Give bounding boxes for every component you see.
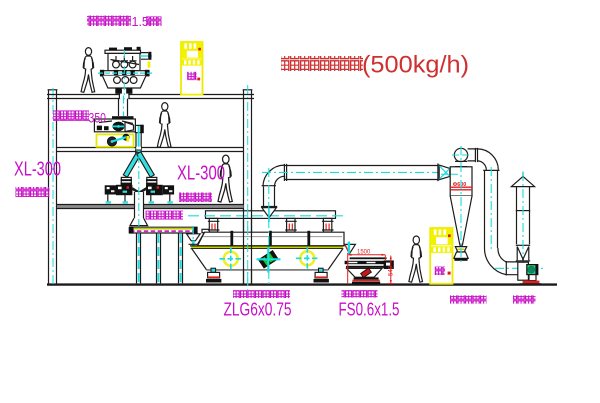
svg-text:ZLG6x0.75: ZLG6x0.75 [224, 299, 292, 319]
svg-text:FS0.6x1.5: FS0.6x1.5 [339, 299, 400, 319]
svg-text:(500kg/h): (500kg/h) [362, 52, 469, 79]
svg-text:350: 350 [89, 110, 107, 126]
svg-text:1500: 1500 [357, 250, 371, 256]
svg-text:XL-300: XL-300 [14, 159, 61, 181]
svg-text:540: 540 [388, 265, 394, 276]
svg-text:XL-300: XL-300 [177, 163, 225, 185]
